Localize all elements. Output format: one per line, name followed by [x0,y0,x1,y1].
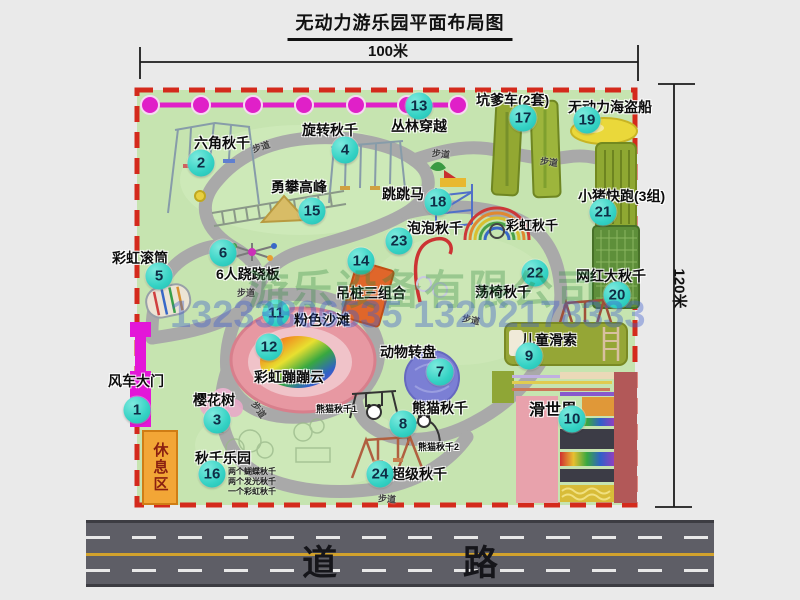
rest-area: 休息区 [142,430,178,505]
rest-area-label: 休息区 [150,442,171,493]
animal-carousel-structure [405,351,459,405]
piggy-run-structure [596,143,636,231]
watermark-phone: 13233806535 13202178333 [170,294,646,337]
road: 道 路 [86,520,714,587]
pirate-ship-structure [571,118,637,144]
road-label: 道 路 [86,535,714,586]
